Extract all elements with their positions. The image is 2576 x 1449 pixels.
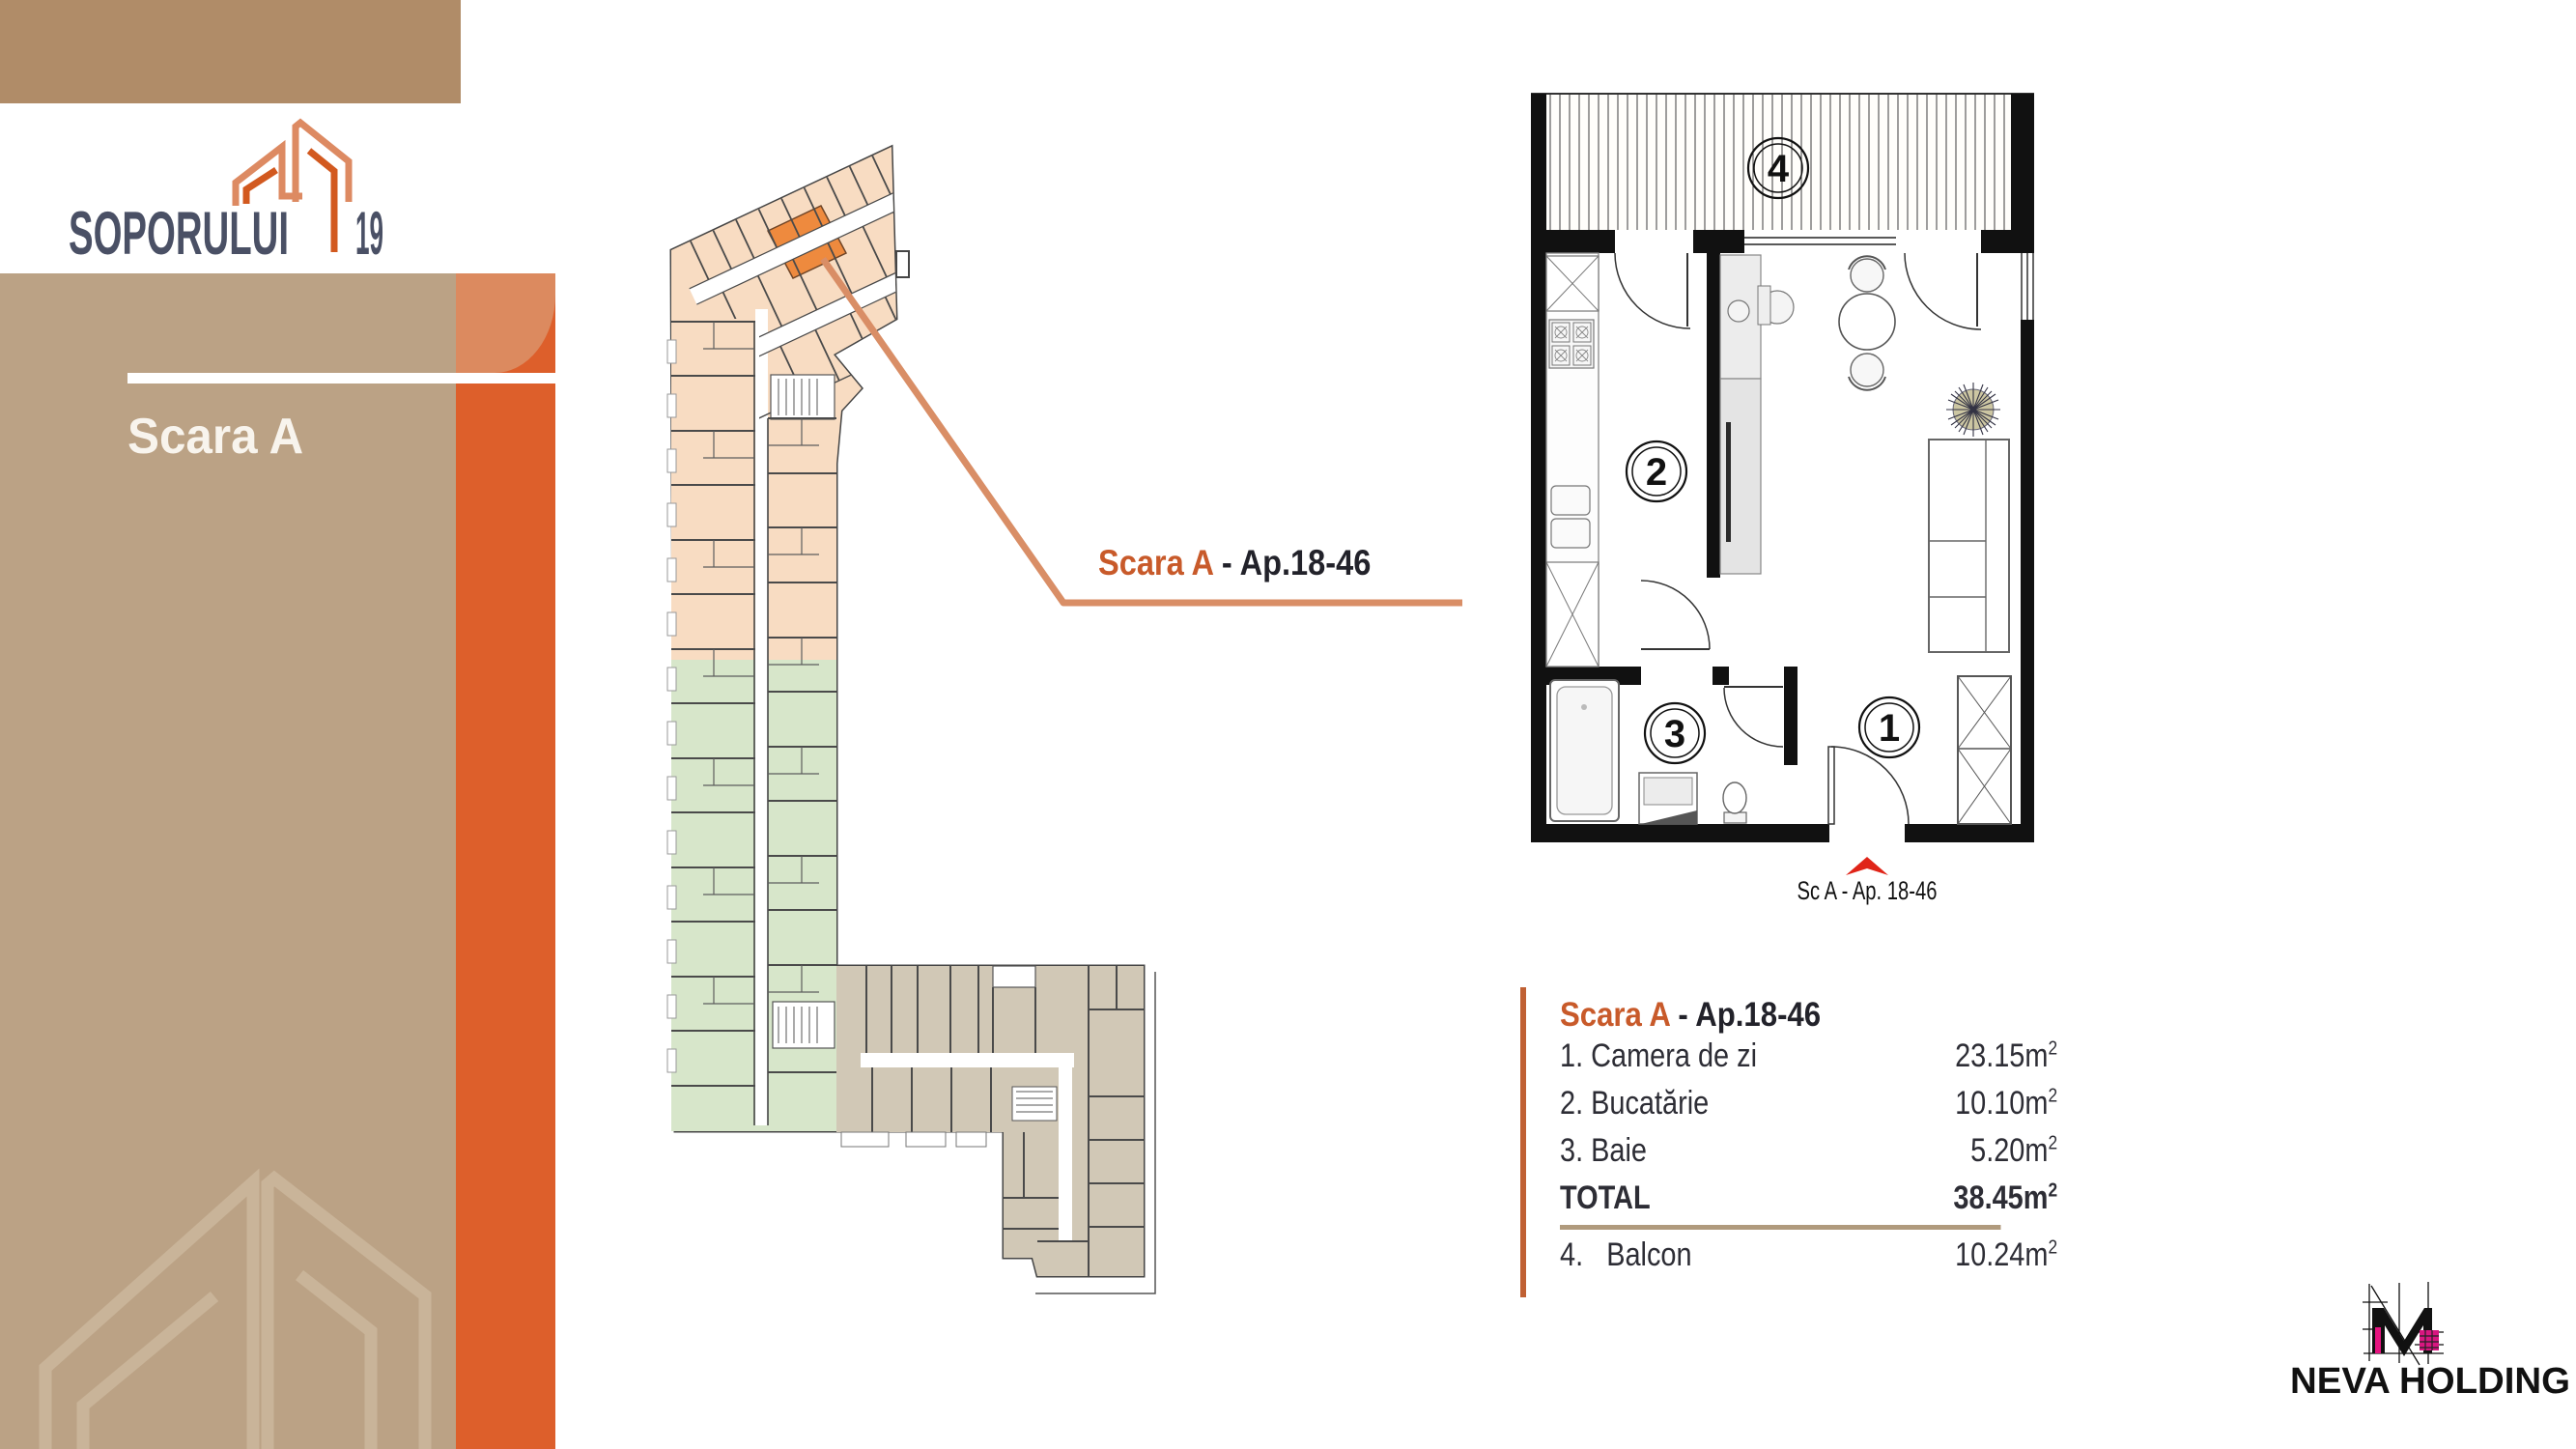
svg-text:Sc A - Ap. 18-46: Sc A - Ap. 18-46: [1798, 876, 1938, 905]
svg-text:NEVA HOLDING: NEVA HOLDING: [2290, 1361, 2570, 1402]
svg-text:1: 1: [1879, 707, 1900, 750]
svg-text:4: 4: [1768, 148, 1790, 190]
svg-text:2: 2: [1646, 451, 1667, 494]
svg-text:3: 3: [1664, 713, 1685, 755]
